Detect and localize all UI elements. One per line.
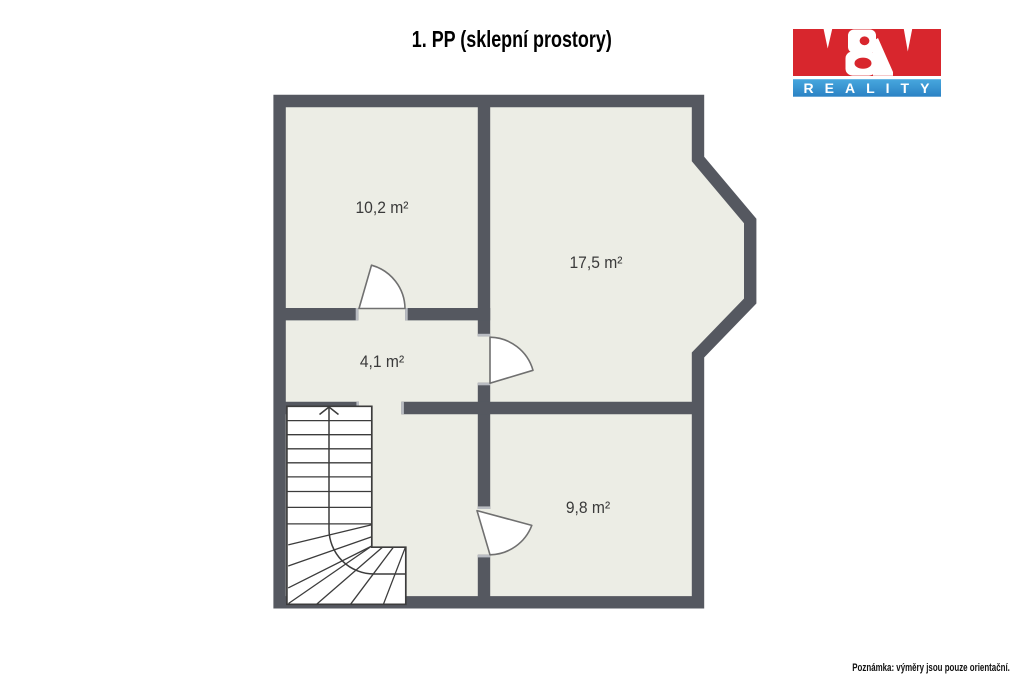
svg-text:REALITY: REALITY	[804, 80, 941, 96]
